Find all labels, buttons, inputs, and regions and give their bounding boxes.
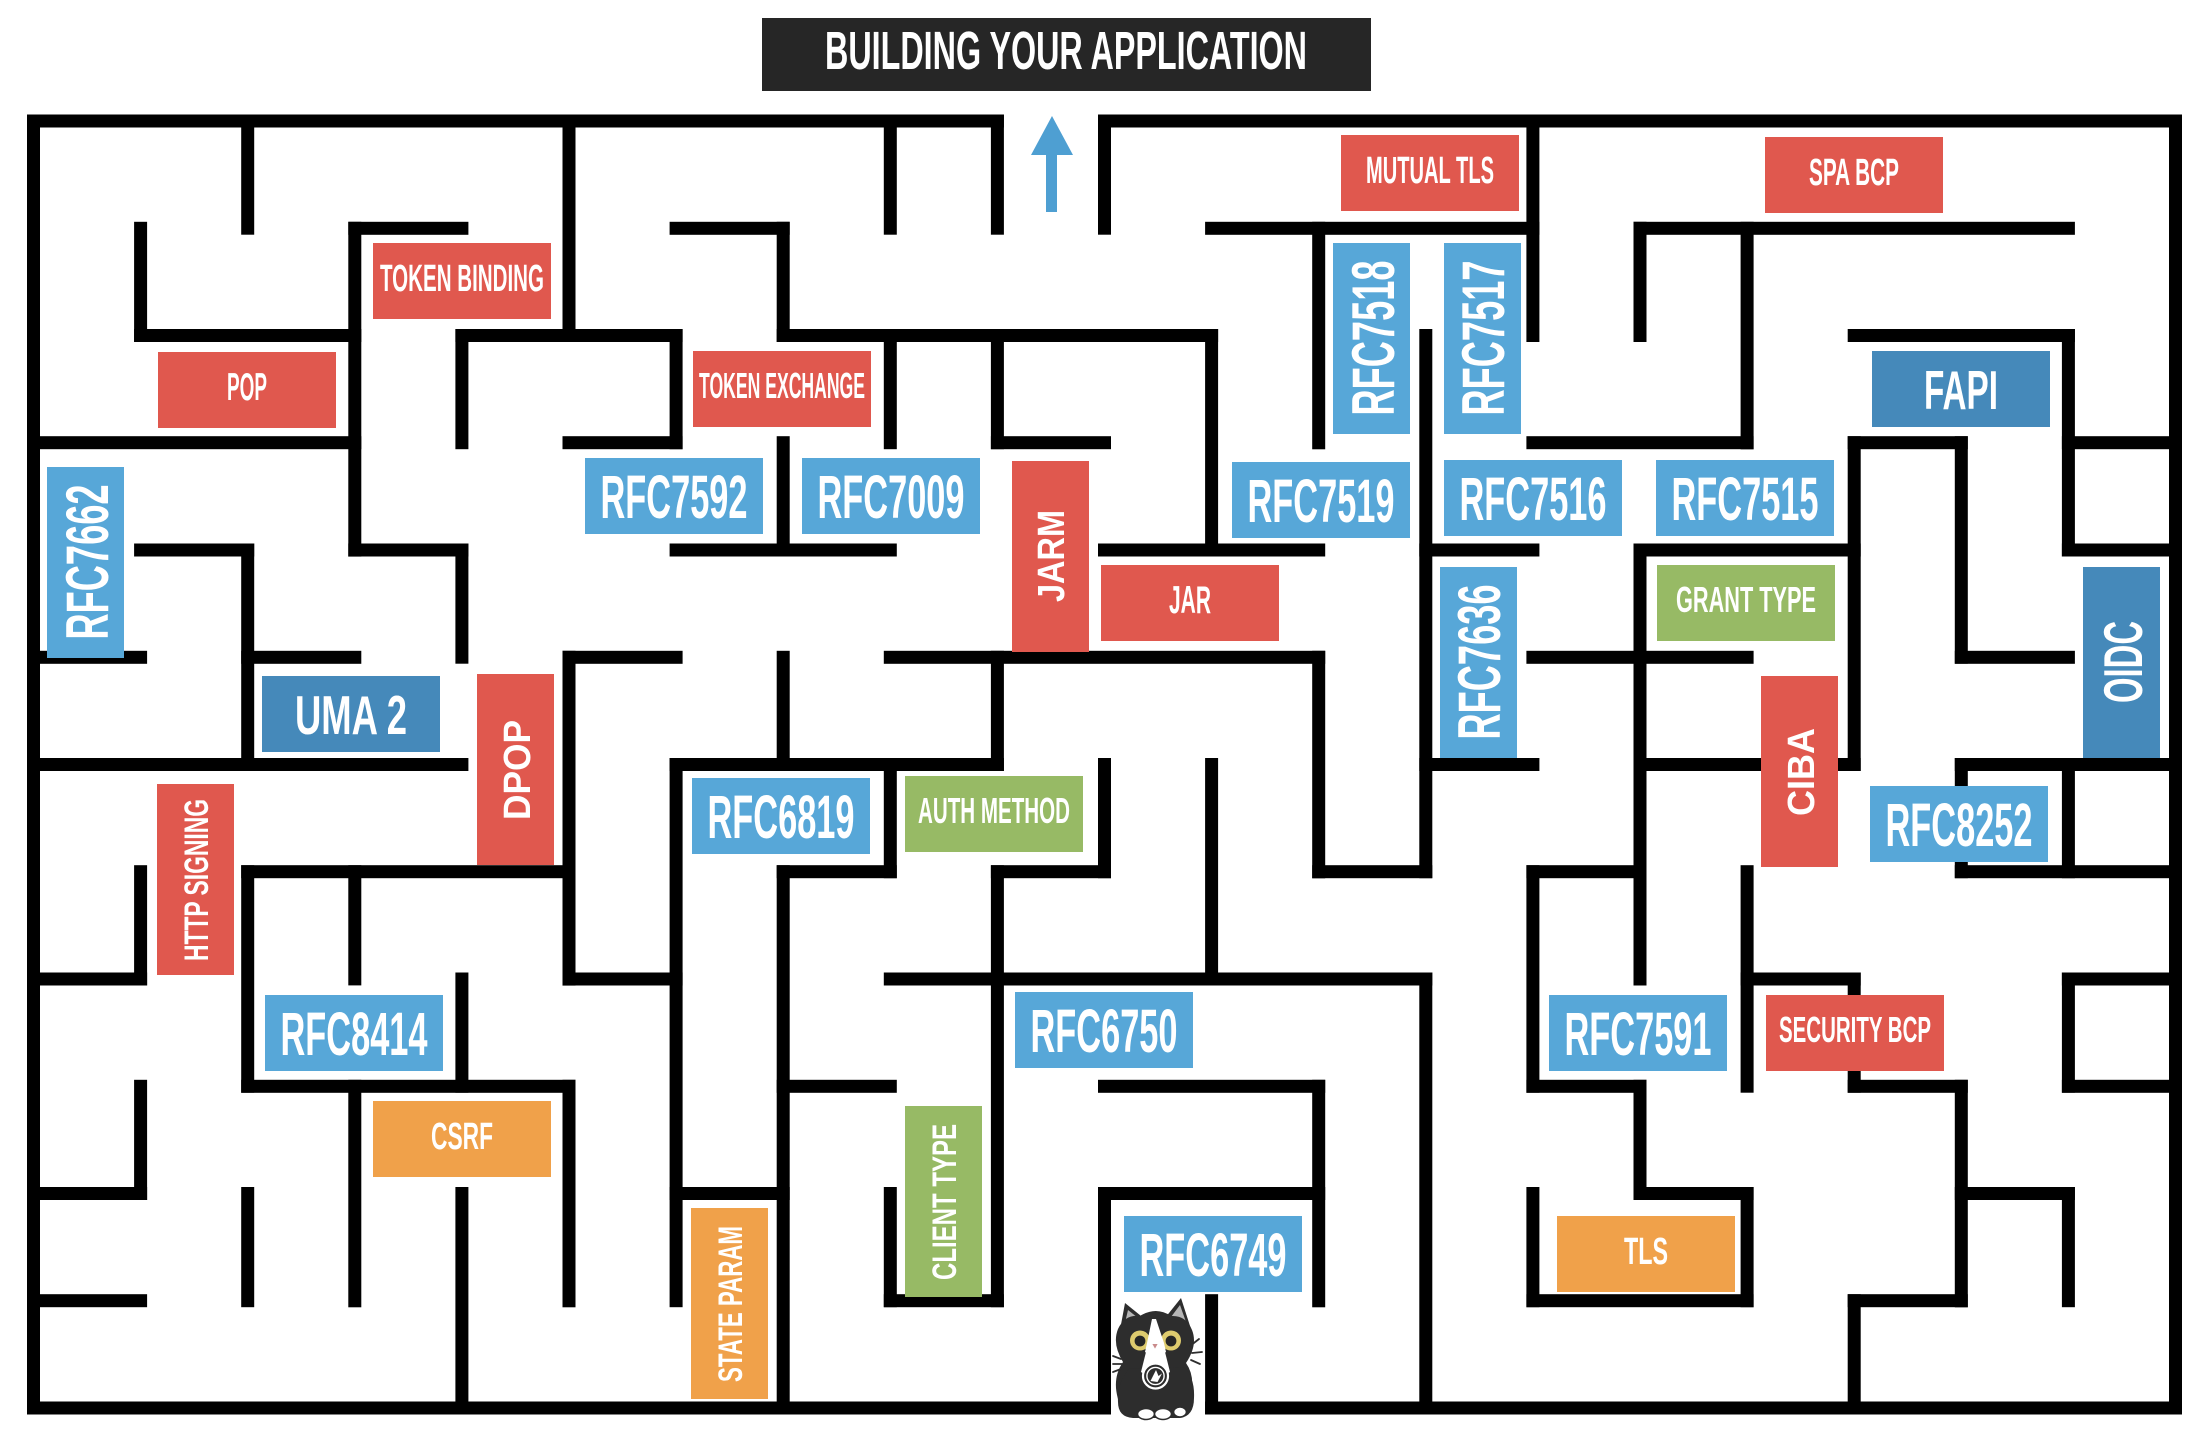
svg-text:BUILDING YOUR APPLICATION: BUILDING YOUR APPLICATION — [825, 21, 1307, 81]
svg-text:SECURITY BCP: SECURITY BCP — [1779, 1009, 1931, 1050]
svg-text:AUTH METHOD: AUTH METHOD — [918, 790, 1070, 831]
svg-text:JARM: JARM — [1031, 510, 1073, 602]
svg-text:RFC7516: RFC7516 — [1460, 465, 1607, 533]
svg-text:CLIENT TYPE: CLIENT TYPE — [926, 1124, 964, 1280]
svg-text:RFC6819: RFC6819 — [708, 783, 855, 851]
svg-text:RFC7517: RFC7517 — [1450, 261, 1517, 416]
svg-text:TOKEN BINDING: TOKEN BINDING — [380, 258, 544, 300]
svg-text:POP: POP — [227, 366, 267, 409]
svg-text:RFC7662: RFC7662 — [54, 485, 121, 640]
svg-text:UMA 2: UMA 2 — [295, 684, 407, 746]
svg-text:MUTUAL TLS: MUTUAL TLS — [1366, 150, 1494, 192]
svg-text:TLS: TLS — [1624, 1231, 1668, 1273]
svg-text:CIBA: CIBA — [1781, 728, 1823, 816]
svg-text:SPA BCP: SPA BCP — [1809, 152, 1899, 194]
svg-text:RFC8414: RFC8414 — [281, 1000, 428, 1068]
svg-text:OIDC: OIDC — [2092, 621, 2154, 703]
svg-text:RFC7591: RFC7591 — [1565, 1000, 1712, 1068]
svg-text:RFC7515: RFC7515 — [1672, 465, 1819, 533]
svg-text:RFC6750: RFC6750 — [1031, 997, 1178, 1065]
svg-text:RFC6749: RFC6749 — [1140, 1221, 1287, 1289]
svg-text:RFC7009: RFC7009 — [818, 463, 965, 531]
svg-text:RFC8252: RFC8252 — [1886, 791, 2033, 859]
svg-text:HTTP SIGNING: HTTP SIGNING — [178, 799, 216, 961]
svg-text:RFC7518: RFC7518 — [1340, 261, 1407, 416]
svg-text:RFC7592: RFC7592 — [601, 463, 748, 531]
svg-text:DPOP: DPOP — [497, 720, 539, 820]
svg-text:GRANT TYPE: GRANT TYPE — [1676, 579, 1816, 620]
svg-text:STATE PARAM: STATE PARAM — [712, 1226, 750, 1382]
svg-text:CSRF: CSRF — [431, 1116, 493, 1158]
svg-text:RFC7519: RFC7519 — [1248, 467, 1395, 535]
svg-text:RFC7636: RFC7636 — [1446, 585, 1513, 740]
svg-text:FAPI: FAPI — [1924, 359, 1998, 421]
svg-text:JAR: JAR — [1169, 579, 1211, 622]
svg-text:TOKEN EXCHANGE: TOKEN EXCHANGE — [699, 365, 865, 406]
